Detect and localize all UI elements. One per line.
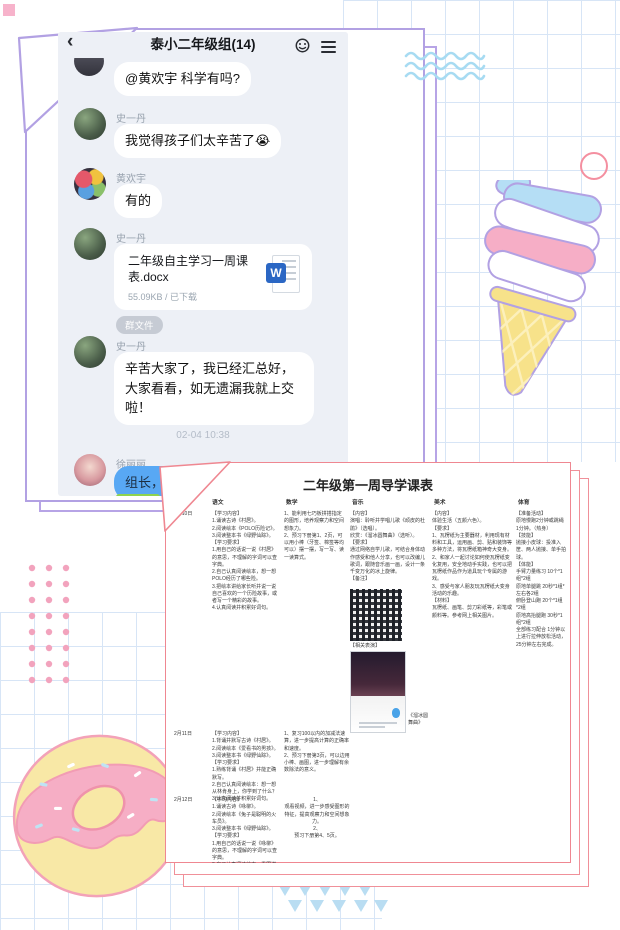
word-doc-icon: W — [266, 255, 300, 295]
triangles-decoration — [272, 882, 402, 918]
avatar[interactable] — [74, 336, 106, 368]
file-attachment-card[interactable]: 二年级自主学习一周课表.docx W 55.09KB / 已下载 — [114, 244, 312, 310]
dots-grid-decoration — [24, 562, 80, 694]
art-cell: 【内容】 体验生活（五颜六色）。 【要求】 1、瓦楞纸为主要器材，利用现有材料和… — [432, 511, 512, 620]
file-size-status: 55.09KB / 已下载 — [128, 290, 197, 303]
sender-name: 史一丹 — [116, 230, 146, 245]
pe-cell: 【准备活动】 原地慢跑2分钟或跳绳1分钟。（热身） 【技能】 抛接小皮球：投准入… — [516, 511, 566, 649]
sender-name: 史一丹 — [116, 110, 146, 125]
pink-circle-decoration — [580, 152, 608, 180]
date-cell: 2月12日 — [174, 797, 210, 804]
chat-header: ‹ 泰小二年级组(14) — [58, 32, 348, 58]
pink-square-decoration — [3, 4, 15, 16]
donut-illustration — [6, 724, 190, 910]
avatar[interactable] — [74, 108, 106, 140]
col-header-art: 美术 — [434, 497, 446, 506]
sender-name: 史一丹 — [116, 338, 146, 353]
math-cell: 1、能利用七巧板拼搭指定的图形，培养观察力和空间想象力。 2、预习下册第1、2页… — [284, 511, 346, 562]
doc-fold-corner — [157, 455, 239, 539]
skater-figure — [392, 708, 400, 718]
chinese-cell: 【学习内容】 1.背诵并默写古诗《村居》。 2.阅读绘本《爱看书的男孩》。 3.… — [212, 731, 280, 804]
avatar[interactable] — [74, 228, 106, 260]
avatar[interactable] — [74, 168, 106, 200]
col-header-pe: 体育 — [518, 497, 530, 506]
group-file-badge: 群文件 — [116, 316, 163, 334]
page: ‹ 泰小二年级组(14) @黄欢宇 科学有吗? 史一丹 我觉得孩子们太辛苦了😭 … — [0, 0, 620, 930]
sender-name: 黄欢宇 — [116, 170, 146, 185]
wavy-lines-icon — [404, 50, 488, 84]
math-cell: 1、复习100以内的加减法速算，进一步提高计算的正确率和速度。 2、预习下册第3… — [284, 731, 350, 775]
menu-icon[interactable] — [321, 41, 336, 56]
hidden-bubble-edge — [116, 494, 160, 496]
math-cell: 1、 观看视频，进一步感受图形的特征，提高观察力和空间想象力。 2、 预习下册第… — [284, 797, 350, 841]
message-timestamp: 02-04 10:38 — [58, 430, 348, 441]
emoji-icon[interactable] — [295, 38, 310, 53]
chat-bubble[interactable]: @黄欢宇 科学有吗? — [114, 62, 251, 96]
chat-bubble[interactable]: 辛苦大家了，我已经汇总好，大家看看，如无遗漏我就上交啦！ — [114, 352, 314, 425]
date-cell: 2月11日 — [174, 731, 210, 738]
chat-screenshot: ‹ 泰小二年级组(14) @黄欢宇 科学有吗? 史一丹 我觉得孩子们太辛苦了😭 … — [58, 32, 348, 496]
col-header-music: 音乐 — [352, 497, 364, 506]
music-cell: 【内容】 演唱：聆听并学唱儿歌《顽皮的杜鹃》（选唱）。 欣赏：《溜冰圆舞曲》（选… — [350, 511, 426, 584]
col-header-math: 数学 — [286, 497, 298, 506]
music-caption: 《溜冰圆舞曲》 — [408, 713, 430, 728]
qr-code — [350, 589, 402, 641]
ice-cream-illustration — [446, 180, 620, 418]
performance-photo — [350, 651, 406, 733]
avatar[interactable] — [74, 454, 106, 486]
music-note: 【相关表演】 — [350, 643, 410, 650]
chat-bubble[interactable]: 有的 — [114, 184, 162, 218]
file-name: 二年级自主学习一周课表.docx — [128, 253, 260, 285]
chat-bubble[interactable]: 我觉得孩子们太辛苦了😭 — [114, 124, 281, 158]
